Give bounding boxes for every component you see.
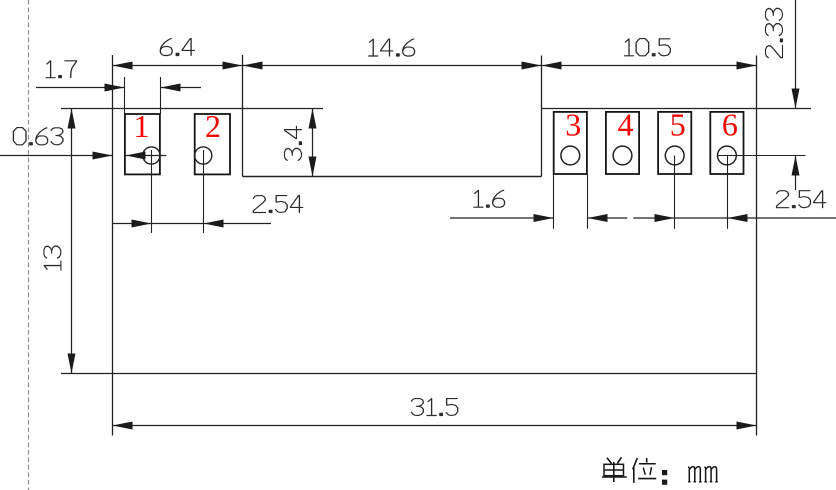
svg-text:5: 5 bbox=[670, 107, 686, 143]
svg-text:2: 2 bbox=[205, 108, 221, 144]
svg-text:6: 6 bbox=[722, 107, 738, 143]
svg-text:3: 3 bbox=[565, 107, 581, 143]
svg-text:1: 1 bbox=[134, 108, 150, 144]
svg-text:4: 4 bbox=[618, 107, 634, 143]
